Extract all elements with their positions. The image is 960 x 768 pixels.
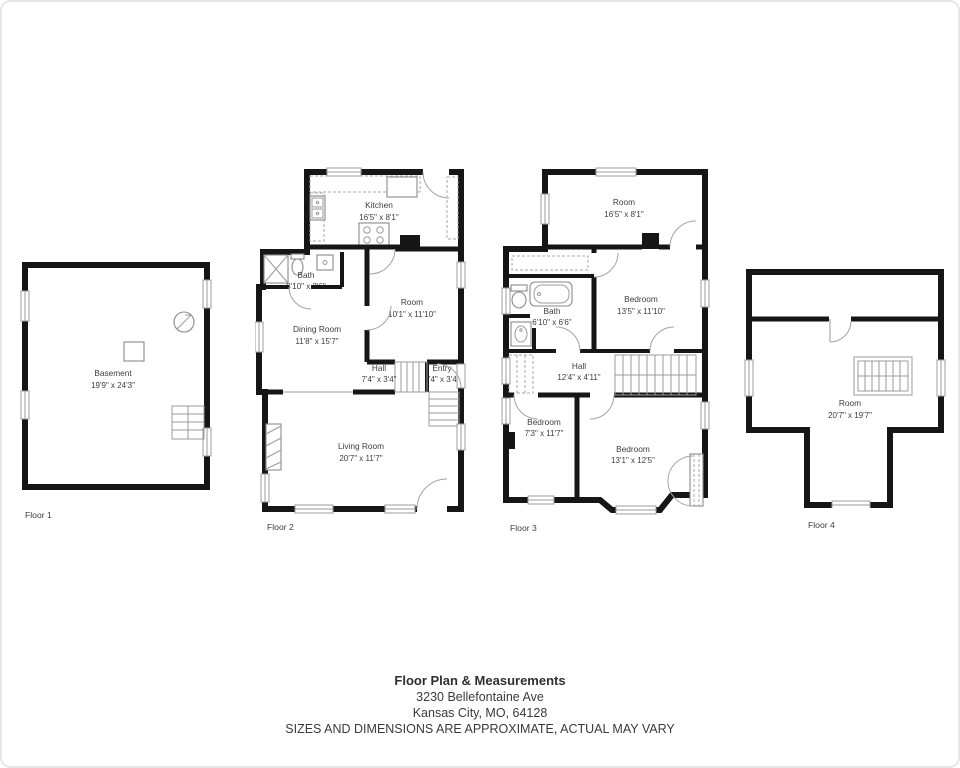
room-label-dining: Dining Room xyxy=(293,324,341,334)
toilet-icon-2 xyxy=(511,285,527,308)
room-label-bedroom3: Bedroom xyxy=(616,444,650,454)
room-dims-room3: 16'5" x 8'1" xyxy=(604,210,644,219)
floor-3-plan: Room 16'5" x 8'1" Bedroom 13'5" x 11'10"… xyxy=(500,158,714,522)
support-post xyxy=(124,342,144,361)
room-dims-living: 20'7" x 11'7" xyxy=(339,454,382,463)
disclaimer-text: SIZES AND DIMENSIONS ARE APPROXIMATE, AC… xyxy=(2,721,958,737)
room-dims-bedroom2: 7'3" x 11'7" xyxy=(525,429,564,438)
room-dims-room: 10'1" x 11'10" xyxy=(388,310,436,319)
floor-1-plan: Basement 19'9" x 24'3" xyxy=(20,260,212,495)
room-label-room3: Room xyxy=(613,197,635,207)
room-label-hall3: Hall xyxy=(572,361,586,371)
room-label-bedroom1: Bedroom xyxy=(624,294,658,304)
room-dims-bedroom3: 13'1" x 12'5" xyxy=(611,456,655,465)
bathtub-icon xyxy=(530,282,572,306)
room-dims-dining: 11'8" x 15'7" xyxy=(295,337,338,346)
shower-icon xyxy=(264,255,288,283)
room-dims-bath3: 6'10" x 6'6" xyxy=(532,318,572,327)
electric-meter-icon xyxy=(174,312,194,332)
floor-4-plan: Room 20'7" x 19'7" xyxy=(744,266,946,508)
floor-3-caption: Floor 3 xyxy=(510,523,537,533)
room-label-room4: Room xyxy=(839,398,861,408)
room-label-kitchen: Kitchen xyxy=(365,200,393,210)
stove-icon xyxy=(359,223,389,247)
room-label-bath3: Bath xyxy=(543,306,560,316)
bath-sink-icon-2 xyxy=(511,322,531,346)
bath-sink-icon xyxy=(317,255,333,270)
address-line-1: 3230 Bellefontaine Ave xyxy=(2,689,958,705)
room-label-basement: Basement xyxy=(94,368,132,378)
room-label-bath: Bath xyxy=(297,270,314,280)
room-dims-hall3: 12'4" x 4'11" xyxy=(557,373,600,382)
room-dims-entry: 3'4" x 3'4" xyxy=(425,375,460,384)
room-label-room: Room xyxy=(401,297,423,307)
floor-1-caption: Floor 1 xyxy=(25,510,52,520)
footer-text-block: Floor Plan & Measurements 3230 Bellefont… xyxy=(2,672,958,737)
floor-plan-sheet: Basement 19'9" x 24'3" Floor 1 xyxy=(0,0,960,768)
room-label-living: Living Room xyxy=(338,441,384,451)
address-line-2: Kansas City, MO, 64128 xyxy=(2,705,958,721)
room-dims-kitchen: 16'5" x 8'1" xyxy=(359,213,399,222)
room-dims-bedroom1: 13'5" x 11'10" xyxy=(617,307,665,316)
room-dims-room4: 20'7" x 19'7" xyxy=(828,411,872,420)
room-dims-basement: 19'9" x 24'3" xyxy=(91,381,135,390)
room-dims-hall: 7'4" x 3'4" xyxy=(362,375,397,384)
sheet-title: Floor Plan & Measurements xyxy=(2,672,958,689)
kitchen-sink xyxy=(310,196,325,220)
floor-4-caption: Floor 4 xyxy=(808,520,835,530)
fireplace xyxy=(266,424,281,470)
floor-2-plan: Kitchen 16'5" x 8'1" Bath 8'10" x 3'6" D… xyxy=(255,166,467,514)
floor-2-caption: Floor 2 xyxy=(267,522,294,532)
